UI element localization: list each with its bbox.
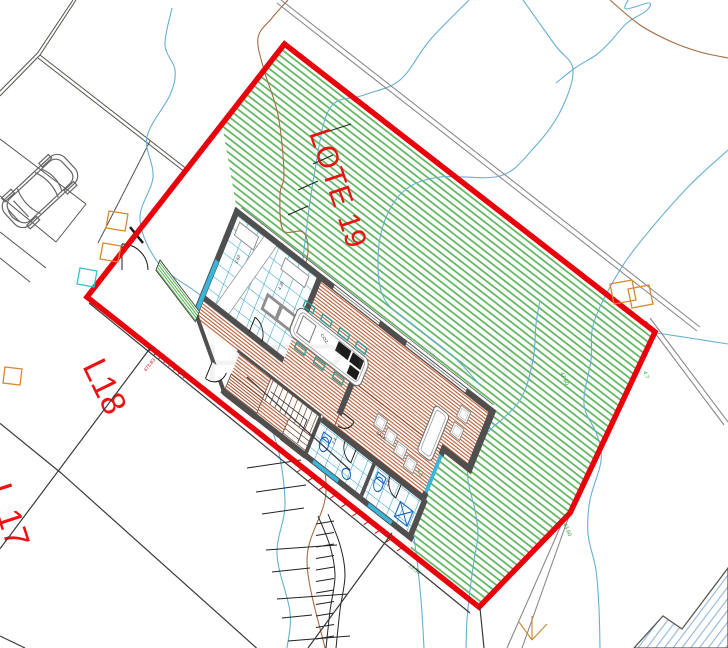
svg-text:HEROJAN: HEROJAN [205, 332, 550, 395]
